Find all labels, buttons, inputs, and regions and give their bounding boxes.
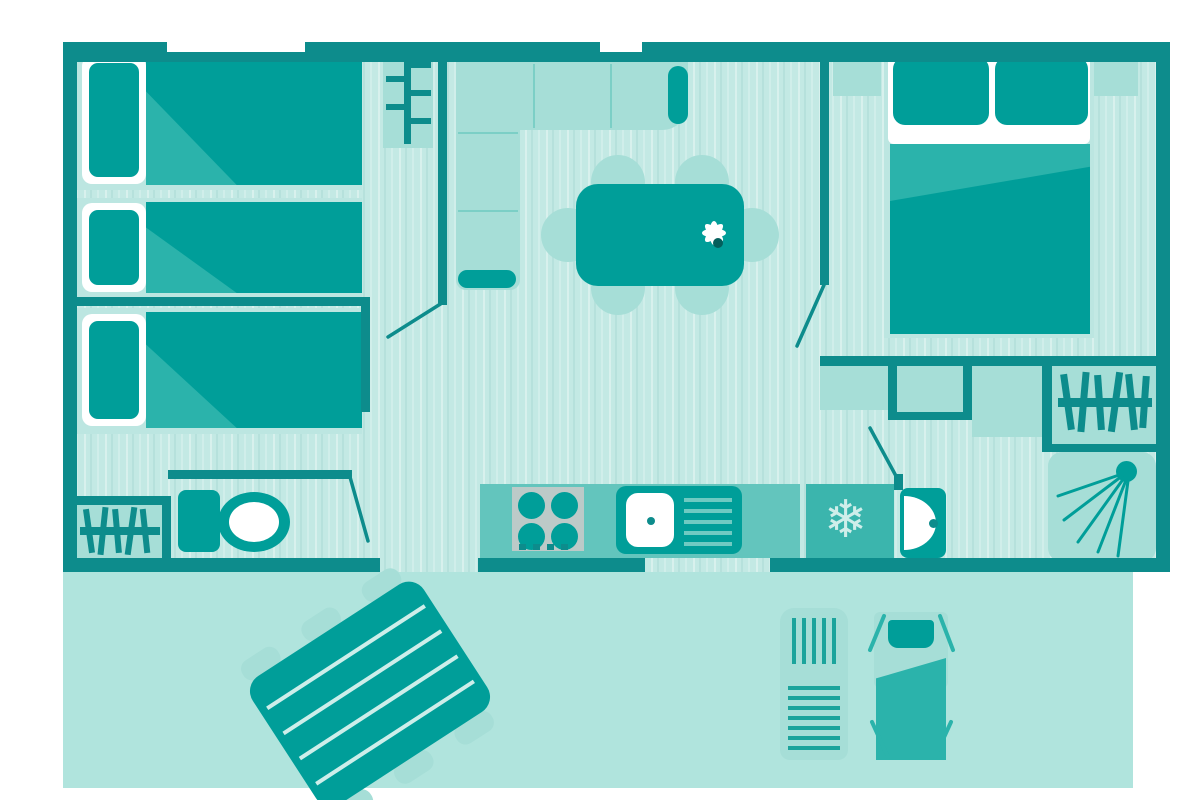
terrace <box>63 572 1133 788</box>
lounger-bodyline <box>788 736 840 740</box>
lounger-bodyline <box>788 726 840 730</box>
lounger-bodyline <box>788 716 840 720</box>
washbasin-tap <box>929 519 938 528</box>
nook-wall-bottom <box>888 412 972 420</box>
double-bed-blanket <box>890 144 1090 334</box>
sofa-seam <box>458 132 518 134</box>
wall-top <box>305 42 600 62</box>
single-bed-1-pillow-inner <box>89 63 139 177</box>
single-bed-1-blanket <box>146 55 362 185</box>
wardrobe-left-wall-top <box>63 496 170 505</box>
single-bed-3-pillow-inner <box>89 321 139 419</box>
lounger-headline <box>832 618 836 664</box>
cabinet <box>897 366 963 412</box>
closet-wall-top <box>820 356 1156 366</box>
single-bed-3-blanket <box>146 312 362 428</box>
stove-knob <box>533 544 540 550</box>
double-bed-pillow-left <box>893 57 989 125</box>
corner-sofa-left <box>456 62 520 290</box>
coat-hook <box>409 62 431 68</box>
wardrobe-left-wall-right <box>162 496 171 558</box>
window-gap <box>600 42 642 52</box>
dining-table <box>576 184 744 286</box>
coat-hook <box>386 104 408 110</box>
wall-left <box>63 42 77 572</box>
wall-bottom <box>770 558 1170 572</box>
single-bed-2-blanket <box>146 202 362 293</box>
drainer-line <box>684 520 732 524</box>
sofa-seam <box>533 64 535 128</box>
stove-knob <box>547 544 554 550</box>
snowflake-icon: ❄ <box>824 494 868 546</box>
stove-knob <box>519 544 526 550</box>
partition-twin-bedroom <box>438 62 447 305</box>
floorplan-canvas: ❄ <box>0 0 1200 800</box>
cabinet <box>972 366 1042 437</box>
single-bed-2-pillow-inner <box>89 210 139 285</box>
lounger-headline <box>822 618 826 664</box>
lounger-headline <box>792 618 796 664</box>
coat-hook <box>409 118 431 124</box>
blanket-fold <box>146 55 362 185</box>
window-gap <box>167 42 305 52</box>
wardrobe-right-wall <box>1042 356 1052 452</box>
wall-bottom <box>63 558 380 572</box>
window-sill <box>600 52 642 62</box>
stove-burner <box>518 492 545 519</box>
blanket-fold <box>146 202 362 293</box>
lounger-bodyline <box>788 686 840 690</box>
sofa-armrest-bottom <box>458 270 516 288</box>
sofa-seam <box>610 64 612 128</box>
wall-bottom <box>478 558 645 572</box>
partition-single-bedroom-h <box>77 297 370 306</box>
lounger-bodyline <box>788 746 840 750</box>
deck-chair-pillow <box>888 620 934 648</box>
lounger-bodyline <box>788 706 840 710</box>
blanket-fold <box>146 312 362 428</box>
wall-top <box>63 42 167 62</box>
sofa-seam <box>458 210 518 212</box>
wardrobe-right-wall-bottom <box>1042 444 1156 452</box>
stove-burner <box>551 492 578 519</box>
shower-tray <box>1048 452 1156 562</box>
drainer-line <box>684 509 732 513</box>
wall-right <box>1156 42 1170 572</box>
window-sill <box>167 52 305 62</box>
partition-single-bedroom-v <box>361 297 370 412</box>
wall-top <box>642 42 1170 62</box>
toilet-bowl-inner <box>229 502 279 542</box>
blanket-fold <box>890 144 1090 334</box>
sink-drain <box>647 517 655 525</box>
lounger-bodyline <box>788 696 840 700</box>
toilet-tank <box>178 490 220 552</box>
sofa-armrest-right <box>668 66 688 124</box>
wc-wall <box>168 470 352 479</box>
coat-rack-pole <box>404 56 411 144</box>
drainer-line <box>684 498 732 502</box>
bathroom-door-stub <box>894 474 903 490</box>
coat-hook <box>409 90 431 96</box>
hanging-rail <box>1058 398 1152 407</box>
drainer-line <box>684 531 732 535</box>
lounger-headline <box>812 618 816 664</box>
double-bed-pillow-right <box>995 57 1088 125</box>
cabinet <box>820 366 888 410</box>
coat-hook <box>386 76 408 82</box>
shower-head <box>1116 461 1137 482</box>
drainer-line <box>684 542 732 546</box>
lounger-headline <box>802 618 806 664</box>
partition-double-bedroom <box>820 62 829 285</box>
stove-knob <box>561 544 568 550</box>
